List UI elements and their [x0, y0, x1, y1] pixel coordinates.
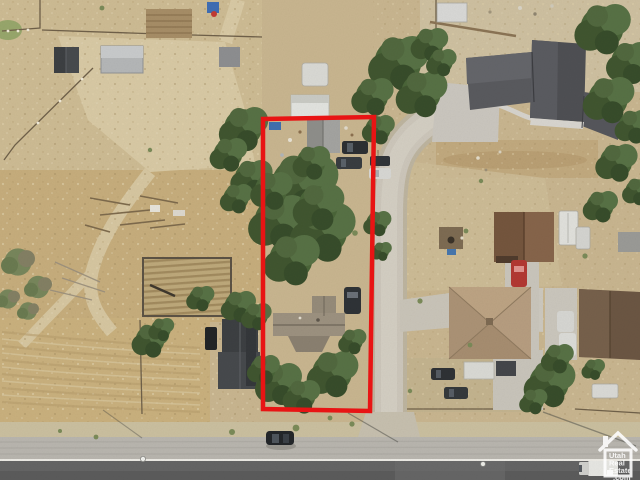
aerial-photo-canvas: Utah Real Estate .com — [0, 0, 640, 480]
aerial-photo: Utah Real Estate .com — [0, 0, 640, 480]
